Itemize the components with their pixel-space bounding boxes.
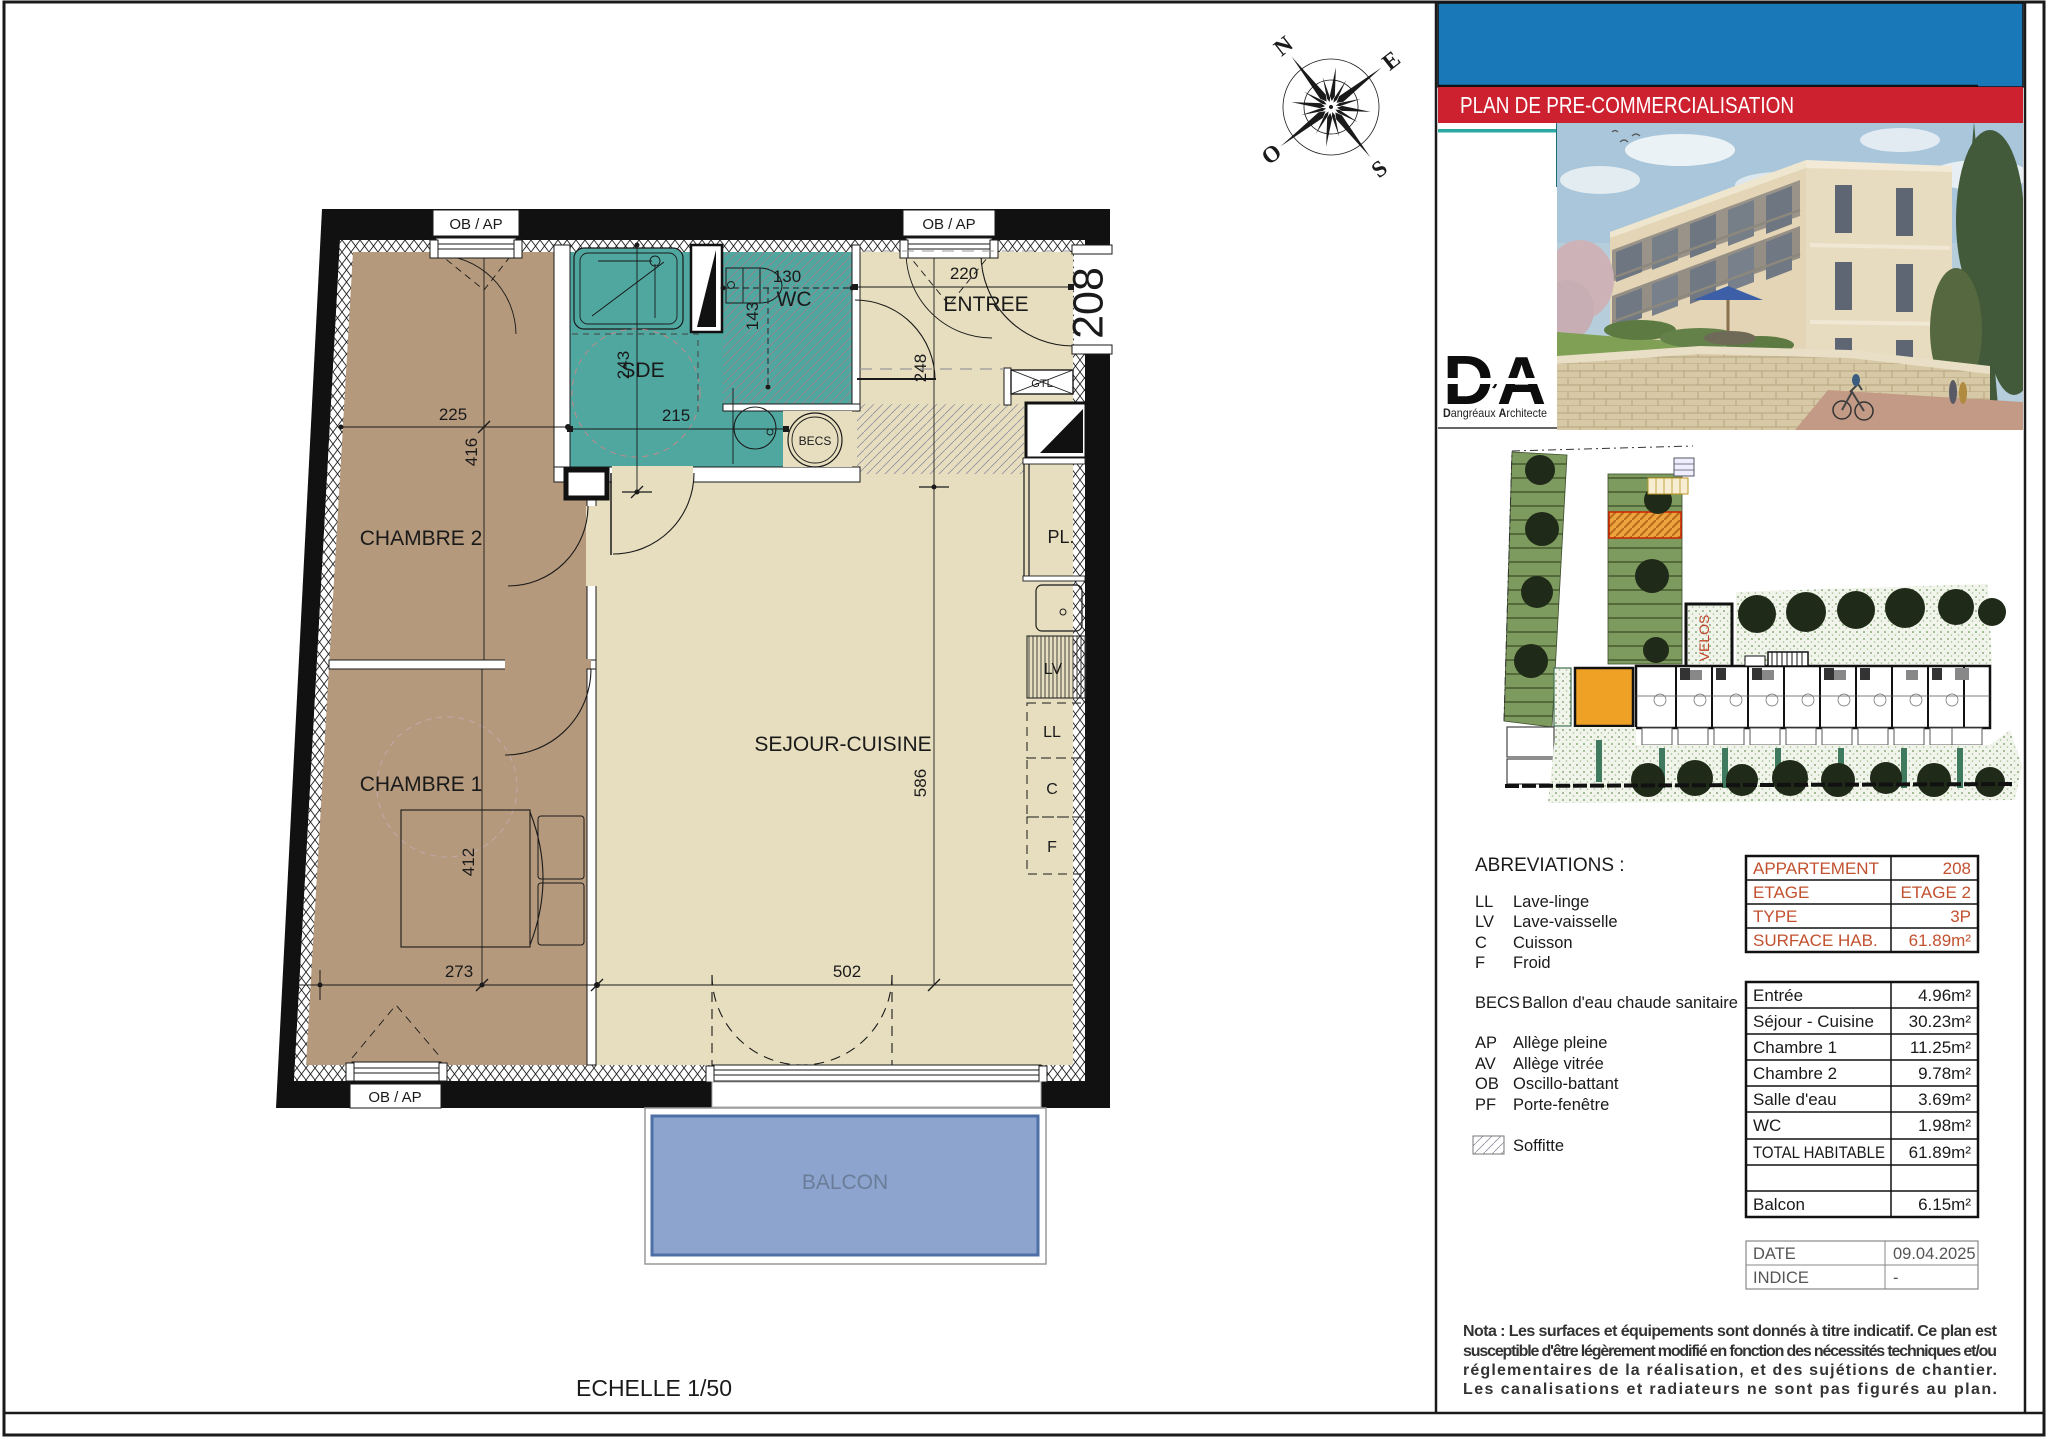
svg-text:Les canalisations et radiateur: Les canalisations et radiateurs ne sont …: [1463, 1381, 1997, 1398]
svg-text:LL: LL: [1475, 893, 1493, 911]
svg-text:Balcon: Balcon: [1753, 1195, 1805, 1214]
svg-text:réglementaires de la réalisati: réglementaires de la réalisation, et des…: [1463, 1362, 1997, 1379]
svg-text:OB / AP: OB / AP: [368, 1089, 421, 1106]
svg-text:61.89m²: 61.89m²: [1909, 931, 1972, 950]
svg-text:Lave-linge: Lave-linge: [1513, 893, 1589, 911]
svg-text:502: 502: [833, 962, 861, 981]
svg-text:Ballon d'eau chaude sanitaire: Ballon d'eau chaude sanitaire: [1522, 994, 1738, 1012]
svg-text:C: C: [1046, 781, 1058, 798]
svg-text:WC: WC: [777, 288, 812, 311]
svg-text:LL: LL: [1043, 724, 1061, 741]
svg-text:PF: PF: [1475, 1096, 1496, 1114]
svg-text:4.96m²: 4.96m²: [1918, 986, 1971, 1005]
svg-text:CHAMBRE 1: CHAMBRE 1: [360, 773, 483, 796]
svg-text:APPARTEMENT: APPARTEMENT: [1753, 859, 1879, 878]
svg-text:225: 225: [439, 405, 467, 424]
svg-text:412: 412: [459, 848, 478, 876]
svg-text:61.89m²: 61.89m²: [1909, 1143, 1972, 1162]
svg-text:SEJOUR-CUISINE: SEJOUR-CUISINE: [754, 733, 931, 756]
svg-text:Lave-vaisselle: Lave-vaisselle: [1513, 913, 1618, 931]
svg-text:9.78m²: 9.78m²: [1918, 1064, 1971, 1083]
svg-text:Séjour - Cuisine: Séjour - Cuisine: [1753, 1012, 1874, 1031]
svg-text:OB / AP: OB / AP: [922, 216, 975, 233]
svg-text:Oscillo-battant: Oscillo-battant: [1513, 1075, 1619, 1093]
svg-text:248: 248: [911, 354, 930, 382]
svg-text:Nota : Les surfaces et équipem: Nota : Les surfaces et équipements sont …: [1463, 1323, 1998, 1340]
svg-text:LV: LV: [1475, 913, 1494, 931]
svg-text:586: 586: [911, 769, 930, 797]
svg-text:Froid: Froid: [1513, 954, 1551, 972]
svg-text:BALCON: BALCON: [802, 1171, 888, 1194]
svg-text:INDICE: INDICE: [1753, 1269, 1809, 1287]
svg-text:3P: 3P: [1950, 907, 1971, 926]
svg-text:AV: AV: [1475, 1055, 1496, 1073]
svg-text:ECHELLE 1/50: ECHELLE 1/50: [576, 1375, 732, 1401]
svg-text:WC: WC: [1753, 1116, 1781, 1135]
svg-text:TYPE: TYPE: [1753, 907, 1797, 926]
svg-text:130: 130: [773, 267, 801, 286]
svg-text:1.98m²: 1.98m²: [1918, 1116, 1971, 1135]
svg-text:ENTREE: ENTREE: [943, 293, 1028, 316]
svg-text:PLAN DE PRE-COMMERCIALISATION: PLAN DE PRE-COMMERCIALISATION: [1460, 92, 1794, 118]
svg-text:143: 143: [743, 302, 762, 330]
svg-text:ABREVIATIONS :: ABREVIATIONS :: [1475, 855, 1625, 876]
svg-text:Salle d'eau: Salle d'eau: [1753, 1090, 1837, 1109]
svg-text:Chambre 1: Chambre 1: [1753, 1038, 1837, 1057]
svg-text:11.25m²: 11.25m²: [1910, 1038, 1971, 1057]
svg-text:SDE: SDE: [621, 359, 664, 382]
svg-text:SURFACE HAB.: SURFACE HAB.: [1753, 931, 1878, 950]
svg-text:09.04.2025: 09.04.2025: [1893, 1245, 1976, 1263]
svg-text:Entrée: Entrée: [1753, 986, 1803, 1005]
svg-text:ETAGE: ETAGE: [1753, 883, 1809, 902]
svg-text:Chambre 2: Chambre 2: [1753, 1064, 1837, 1083]
svg-text:susceptible d'être légèrement: susceptible d'être légèrement modifié en…: [1463, 1343, 1997, 1360]
svg-text:Cuisson: Cuisson: [1513, 934, 1573, 952]
svg-text:Porte-fenêtre: Porte-fenêtre: [1513, 1096, 1609, 1114]
svg-text:VELOS: VELOS: [1696, 615, 1712, 662]
svg-text:F: F: [1047, 839, 1057, 856]
svg-text:Allège pleine: Allège pleine: [1513, 1034, 1608, 1052]
svg-text:Dangréaux Architecte: Dangréaux Architecte: [1443, 406, 1547, 420]
svg-text:30.23m²: 30.23m²: [1909, 1012, 1972, 1031]
svg-text:F: F: [1475, 954, 1485, 972]
svg-text:3.69m²: 3.69m²: [1918, 1090, 1971, 1109]
svg-text:220: 220: [950, 264, 978, 283]
svg-text:GTL: GTL: [1031, 378, 1052, 390]
svg-text:LV: LV: [1044, 661, 1063, 678]
svg-text:PL.: PL.: [1047, 527, 1074, 547]
svg-text:215: 215: [662, 406, 690, 425]
svg-text:208: 208: [1064, 267, 1112, 339]
svg-text:273: 273: [445, 962, 473, 981]
svg-text:TOTAL HABITABLE: TOTAL HABITABLE: [1753, 1143, 1885, 1162]
svg-text:DATE: DATE: [1753, 1245, 1796, 1263]
svg-text:OB / AP: OB / AP: [449, 216, 502, 233]
svg-text:BECS: BECS: [799, 434, 832, 448]
svg-text:OB: OB: [1475, 1075, 1499, 1093]
svg-text:6.15m²: 6.15m²: [1918, 1195, 1971, 1214]
svg-text:416: 416: [462, 438, 481, 466]
svg-text:BECS: BECS: [1475, 994, 1520, 1012]
svg-text:208: 208: [1943, 859, 1971, 878]
svg-text:Soffitte: Soffitte: [1513, 1137, 1564, 1155]
svg-text:-: -: [1893, 1269, 1899, 1287]
svg-text:C: C: [1475, 934, 1487, 952]
svg-text:AP: AP: [1475, 1034, 1497, 1052]
svg-text:CHAMBRE 2: CHAMBRE 2: [360, 527, 483, 550]
svg-text:ETAGE 2: ETAGE 2: [1900, 883, 1971, 902]
svg-text:Allège vitrée: Allège vitrée: [1513, 1055, 1604, 1073]
